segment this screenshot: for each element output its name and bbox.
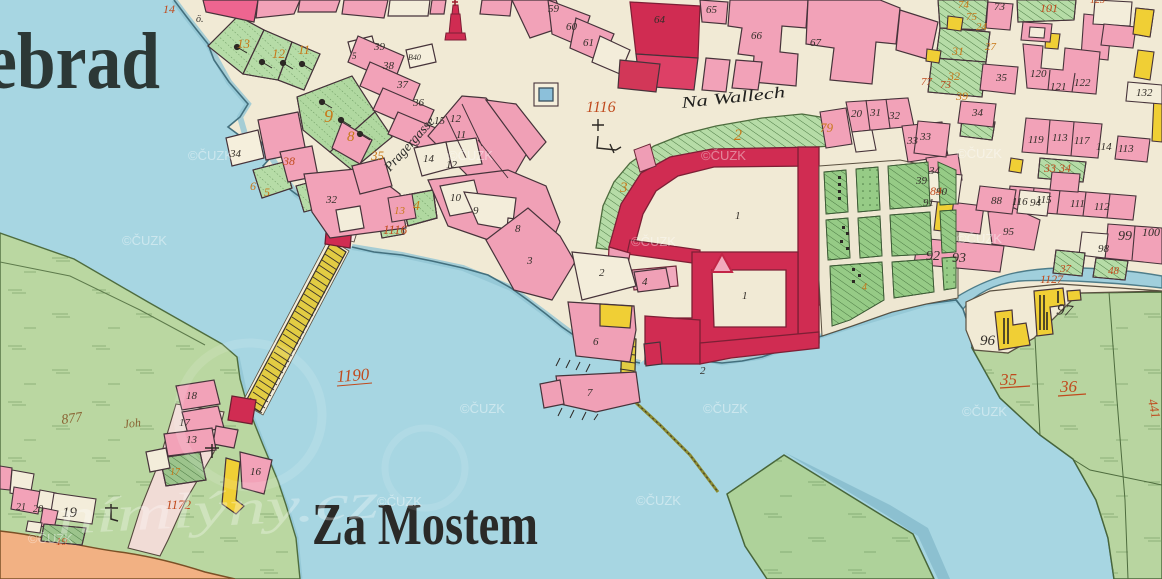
svg-text:©ČUZK: ©ČUZK — [957, 231, 1002, 246]
svg-text:121: 121 — [1050, 81, 1067, 93]
svg-text:©ČUZK: ©ČUZK — [703, 401, 748, 416]
svg-text:27: 27 — [985, 41, 997, 53]
svg-text:79: 79 — [820, 120, 834, 135]
svg-text:9: 9 — [324, 106, 333, 126]
svg-text:9: 9 — [473, 205, 479, 217]
svg-text:20: 20 — [33, 504, 43, 515]
svg-text:99: 99 — [1118, 229, 1132, 244]
svg-text:39: 39 — [373, 41, 386, 53]
svg-text:20: 20 — [851, 108, 863, 120]
svg-text:119: 119 — [1028, 134, 1044, 146]
svg-text:59: 59 — [548, 3, 560, 15]
svg-text:64: 64 — [654, 14, 666, 26]
svg-text:39: 39 — [915, 175, 928, 187]
svg-text:1: 1 — [742, 290, 748, 302]
svg-text:35: 35 — [999, 370, 1017, 389]
svg-text:13: 13 — [394, 205, 406, 217]
svg-text:73: 73 — [994, 1, 1006, 13]
svg-text:33: 33 — [906, 135, 919, 147]
svg-text:©ČUZK: ©ČUZK — [460, 401, 505, 416]
svg-text:©ČUZK: ©ČUZK — [957, 146, 1002, 161]
svg-text:98: 98 — [1098, 243, 1110, 255]
svg-text:2: 2 — [599, 267, 605, 279]
svg-text:117: 117 — [1074, 135, 1090, 147]
svg-text:73: 73 — [940, 79, 952, 91]
svg-text:67: 67 — [810, 37, 822, 49]
svg-text:15: 15 — [434, 115, 446, 127]
svg-text:132: 132 — [1136, 87, 1153, 99]
svg-text:6: 6 — [593, 336, 599, 348]
svg-text:1116: 1116 — [586, 99, 616, 116]
svg-text:122: 122 — [1074, 77, 1091, 89]
svg-text:4: 4 — [862, 282, 867, 293]
svg-text:112: 112 — [1094, 201, 1110, 213]
svg-text:18: 18 — [186, 390, 198, 402]
svg-text:37: 37 — [396, 79, 409, 91]
svg-text:1: 1 — [735, 210, 741, 222]
svg-text:35: 35 — [370, 148, 385, 163]
svg-text:111: 111 — [1070, 198, 1085, 210]
svg-text:©ČUZK: ©ČUZK — [122, 233, 167, 248]
svg-text:95: 95 — [1003, 226, 1015, 238]
svg-text:©ČUZK: ©ČUZK — [636, 493, 681, 508]
svg-text:100: 100 — [1142, 225, 1160, 239]
svg-text:5: 5 — [264, 185, 270, 199]
svg-text:84: 84 — [930, 184, 942, 198]
svg-text:116: 116 — [1012, 196, 1028, 208]
svg-text:1190: 1190 — [336, 365, 370, 386]
svg-text:16: 16 — [250, 466, 262, 478]
svg-text:48: 48 — [1108, 265, 1120, 277]
svg-text:14: 14 — [163, 2, 175, 16]
svg-text:1116: 1116 — [383, 222, 408, 237]
svg-text:12: 12 — [272, 46, 286, 61]
svg-text:34: 34 — [971, 107, 984, 119]
svg-text:13: 13 — [237, 36, 251, 51]
svg-text:113: 113 — [1118, 143, 1134, 155]
svg-text:11: 11 — [456, 129, 466, 141]
svg-text:77: 77 — [921, 76, 933, 88]
svg-text:33 34: 33 34 — [1043, 161, 1071, 175]
svg-text:2: 2 — [734, 127, 742, 144]
svg-text:12: 12 — [450, 113, 462, 125]
svg-text:93: 93 — [952, 251, 966, 266]
svg-text:1127: 1127 — [1040, 272, 1064, 286]
svg-text:35: 35 — [995, 72, 1008, 84]
svg-text:ebrad: ebrad — [0, 18, 160, 106]
svg-text:33: 33 — [919, 131, 932, 143]
svg-text:8: 8 — [347, 129, 355, 145]
svg-text:65: 65 — [706, 4, 718, 16]
svg-text:123: 123 — [1090, 0, 1105, 6]
svg-text:11: 11 — [298, 42, 310, 57]
svg-text:96: 96 — [980, 333, 996, 349]
svg-text:31: 31 — [869, 107, 881, 119]
svg-text:74: 74 — [958, 0, 970, 11]
svg-text:10: 10 — [450, 192, 462, 204]
svg-text:8: 8 — [515, 223, 521, 235]
svg-text:3: 3 — [619, 180, 628, 196]
svg-text:24: 24 — [976, 21, 988, 33]
svg-text:60: 60 — [566, 21, 578, 33]
svg-text:4: 4 — [413, 199, 420, 214]
svg-text:2: 2 — [700, 365, 706, 377]
svg-text:101: 101 — [1040, 1, 1058, 15]
svg-text:38: 38 — [282, 154, 295, 168]
svg-text:7: 7 — [587, 387, 593, 399]
svg-text:31: 31 — [951, 44, 964, 58]
svg-text:Joh: Joh — [123, 415, 142, 431]
svg-text:34: 34 — [928, 165, 941, 177]
svg-text:61: 61 — [583, 37, 594, 49]
svg-text:39: 39 — [955, 89, 968, 103]
svg-text:©ČUZK: ©ČUZK — [448, 148, 493, 163]
svg-text:17: 17 — [170, 467, 181, 478]
svg-text:66: 66 — [751, 30, 763, 42]
svg-text:38: 38 — [382, 60, 395, 72]
svg-text:14: 14 — [423, 153, 435, 165]
svg-text:94: 94 — [1030, 197, 1042, 209]
svg-text:©ČUZK: ©ČUZK — [631, 234, 676, 249]
svg-text:120: 120 — [1030, 68, 1047, 80]
svg-text:32: 32 — [888, 110, 901, 122]
svg-text:4: 4 — [642, 276, 648, 288]
svg-text:6: 6 — [250, 179, 256, 193]
svg-text:ö.: ö. — [196, 14, 204, 25]
svg-text:32: 32 — [325, 194, 338, 206]
svg-text:©ČUZK: ©ČUZK — [188, 148, 233, 163]
svg-text:21: 21 — [16, 502, 26, 513]
svg-text:114: 114 — [1096, 141, 1112, 153]
svg-text:36: 36 — [1059, 377, 1078, 396]
svg-text:36: 36 — [412, 97, 425, 109]
svg-text:5: 5 — [352, 51, 357, 61]
svg-text:B40: B40 — [408, 53, 421, 62]
svg-text:91: 91 — [923, 197, 934, 209]
svg-text:113: 113 — [1052, 132, 1068, 144]
svg-text:92: 92 — [926, 249, 940, 264]
svg-text:88: 88 — [991, 195, 1003, 207]
svg-text:3: 3 — [526, 255, 533, 267]
svg-text:©ČUZK: ©ČUZK — [962, 404, 1007, 419]
svg-text:©ČUZK: ©ČUZK — [701, 148, 746, 163]
svg-text:877: 877 — [60, 410, 84, 428]
